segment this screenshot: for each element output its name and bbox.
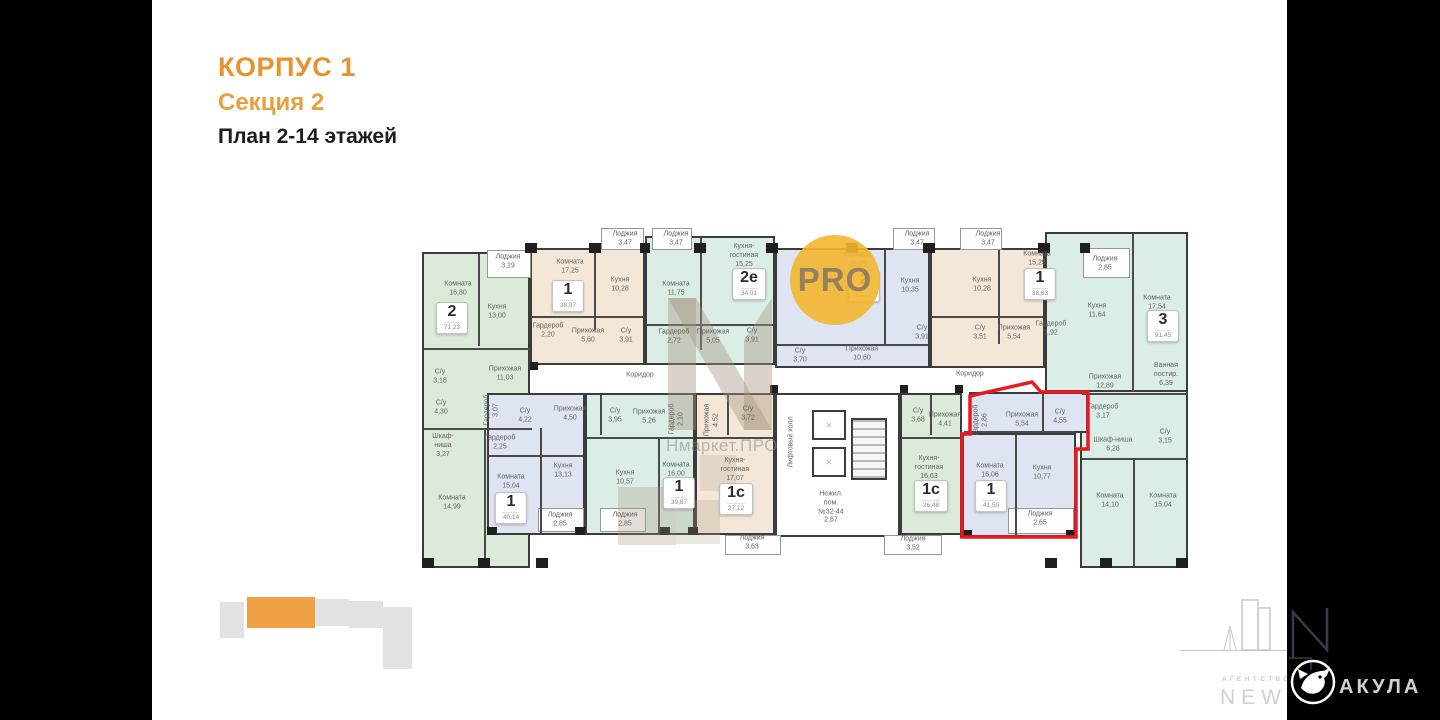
- wall-pier: [694, 243, 706, 253]
- agency-building-sketch: [1180, 592, 1287, 650]
- wall-pier: [589, 243, 601, 253]
- room-label: Прихожая5,54: [998, 324, 1030, 342]
- room-label: Лоджия3,47: [905, 230, 930, 248]
- room-label: Комната16,80: [444, 280, 471, 298]
- room-label: Кухня13,13: [554, 462, 573, 480]
- wall-segment: [1015, 435, 1017, 535]
- wall-pier: [1045, 558, 1057, 568]
- region-apartment-1room-top: [530, 248, 645, 365]
- agency-label: АГЕНТСТВО: [1222, 676, 1287, 683]
- wall-pier: [1080, 243, 1090, 253]
- stairs: [851, 418, 887, 480]
- room-label: Комната11,75: [662, 280, 689, 298]
- pro-watermark-label: PRO: [798, 261, 873, 299]
- wall-pier: [1100, 558, 1112, 568]
- room-label: Лоджия3,19: [496, 253, 521, 271]
- room-label: Кухня13,00: [488, 303, 507, 321]
- room-label: Лоджия3,47: [664, 230, 689, 248]
- agency-logo: АГЕНТСТВО NEW: [1180, 592, 1287, 712]
- unit-badge: 391,45: [1147, 310, 1179, 342]
- shark-icon: [1289, 658, 1337, 706]
- header: КОРПУС 1 Секция 2 План 2-14 этажей: [218, 52, 397, 149]
- room-label: Гардероб3,17: [1088, 403, 1119, 421]
- room-label: Гардероб2,20: [533, 322, 564, 340]
- room-label: С/у3,18: [433, 368, 447, 386]
- room-label: Кухня11,64: [1088, 302, 1107, 320]
- room-label: Ваннаяпостир.6,39: [1154, 362, 1178, 388]
- room-label: Лоджия3,47: [976, 230, 1001, 248]
- unit-badge: 2е34,91: [732, 268, 766, 300]
- room-label: С/у4,55: [1053, 408, 1067, 426]
- room-label: Шкаф-ниша3,27: [432, 433, 454, 459]
- room-label: С/у3,70: [793, 347, 807, 365]
- room-label: Комната17,25: [556, 258, 583, 276]
- building-block: [220, 602, 244, 638]
- wall-segment: [594, 250, 596, 330]
- room-label: Кухня10,28: [973, 276, 992, 294]
- building-block: [383, 607, 412, 669]
- room-label: Гардероб1,92: [1036, 320, 1067, 338]
- wall-pier: [640, 243, 650, 253]
- room-label: Нежил.пом.№32-442,67: [818, 491, 843, 526]
- room-label: Коридор: [626, 372, 654, 381]
- room-label: С/у3,95: [608, 407, 622, 425]
- wall-pier: [525, 243, 537, 253]
- wall-pier: [955, 385, 963, 393]
- wall-pier: [770, 385, 778, 393]
- room-label: Лоджия2,85: [1093, 255, 1118, 273]
- unit-badge: 1с27,12: [719, 483, 753, 515]
- wall-segment: [478, 254, 480, 346]
- wall-segment: [932, 316, 1043, 318]
- shark-logo-block: АКУЛА: [1287, 0, 1440, 720]
- room-label: Комната15,25: [1023, 250, 1050, 268]
- unit-badge: 139,87: [663, 477, 695, 509]
- wall-segment: [600, 395, 602, 435]
- room-label: Прихожая4,52: [703, 404, 721, 436]
- building-block: [315, 599, 349, 626]
- wall-segment: [1082, 393, 1188, 395]
- building-block: [349, 601, 383, 628]
- nmarket-watermark-text: Нмаркет.ПРО: [666, 436, 778, 456]
- room-label: Кухня-гостиная15,25: [730, 243, 758, 269]
- room-label: С/у3,51: [973, 324, 987, 342]
- wall-segment: [902, 437, 960, 439]
- wall-pier: [1066, 530, 1076, 538]
- room-label: Комната14,10: [1096, 492, 1123, 510]
- room-label: Лоджия3,63: [740, 534, 765, 552]
- room-label: С/у3,91: [745, 327, 759, 345]
- wall-segment: [424, 348, 530, 350]
- unit-badge: 140,14: [495, 492, 527, 524]
- unit-badge: 271,23: [436, 302, 468, 334]
- room-label: Прихожая10,60: [846, 345, 878, 363]
- room-label: Лоджия2,65: [1028, 510, 1053, 528]
- room-label: С/у4,30: [434, 399, 448, 417]
- building-title: КОРПУС 1: [218, 52, 397, 83]
- room-label: Лоджия3,47: [613, 230, 638, 248]
- room-label: Комната15,04: [1149, 492, 1176, 510]
- wall-pier: [575, 527, 585, 535]
- section-title: Секция 2: [218, 89, 397, 117]
- wall-segment: [647, 324, 773, 326]
- room-label: Шкаф-ниша6,28: [1094, 436, 1133, 454]
- wall-segment: [1133, 460, 1135, 566]
- room-label: С/у3,91: [915, 324, 929, 342]
- wall-segment: [1042, 394, 1044, 432]
- unit-badge: 1с26,48: [914, 480, 948, 512]
- wall-pier: [766, 243, 778, 253]
- room-label: Комната14,99: [438, 494, 465, 512]
- wall-pier: [478, 558, 490, 568]
- room-label: С/у3,72: [741, 405, 755, 423]
- wall-pier: [487, 527, 497, 535]
- room-label: Прихожая11,03: [489, 365, 521, 383]
- wall-segment: [727, 395, 729, 435]
- room-label: Коридор: [956, 371, 984, 380]
- wall-segment: [424, 428, 532, 430]
- agency-divider-line: [1180, 650, 1287, 651]
- wall-pier: [422, 558, 434, 568]
- room-label: Кухня-гостиная17,07: [721, 457, 749, 483]
- room-label: Кухня10,77: [1033, 464, 1052, 482]
- room-label: С/у3,68: [911, 407, 925, 425]
- room-label: Гардероб2,25: [485, 434, 516, 452]
- wall-segment: [658, 439, 660, 533]
- wall-segment: [1132, 234, 1134, 392]
- room-label: С/у4,22: [518, 407, 532, 425]
- wall-segment: [1082, 458, 1188, 460]
- room-label: Прихожая12,89: [1089, 373, 1121, 391]
- unit-badge: 138,63: [1024, 268, 1056, 300]
- room-label: Гардероб2,10: [668, 404, 686, 435]
- room-label: Прихожая4,41: [929, 411, 961, 429]
- wall-segment: [884, 250, 886, 346]
- room-label: Лоджия3,52: [901, 535, 926, 553]
- room-label: Кухня-гостиная16,63: [915, 455, 943, 481]
- wall-segment: [532, 316, 644, 318]
- shark-agency-name: АКУЛА: [1339, 676, 1421, 699]
- room-label: Лоджия2,85: [548, 511, 573, 529]
- room-label: Прихожая5,26: [633, 408, 665, 426]
- room-label: С/у3,15: [1158, 428, 1172, 446]
- room-label: Гардероб3,07: [483, 395, 501, 426]
- unit-badge: 138,97: [552, 280, 584, 312]
- wall-pier: [960, 530, 972, 538]
- room-label: Лифтовый холл: [788, 416, 797, 467]
- room-label: Прихожая4,50: [554, 405, 586, 423]
- wall-pier: [688, 527, 698, 535]
- room-label: Комната16,06: [976, 462, 1003, 480]
- slide-background: КОРПУС 1 Секция 2 План 2-14 этажей ✕: [152, 0, 1287, 720]
- room-label: С/у3,91: [619, 327, 633, 345]
- room-label: Прихожая5,05: [697, 328, 729, 346]
- elevator-shaft: ✕: [812, 447, 846, 477]
- unit-badge-highlighted[interactable]: 141,50: [975, 480, 1007, 512]
- room-label: Кухня10,35: [901, 277, 920, 295]
- room-label: Прихожая5,54: [1006, 411, 1038, 429]
- wall-pier: [536, 558, 548, 568]
- wall-pier: [900, 385, 908, 393]
- wall-segment: [489, 455, 583, 457]
- room-label: Кухня10,28: [611, 276, 630, 294]
- building-locator: [220, 595, 580, 675]
- wall-pier: [530, 362, 538, 370]
- room-label: Гардероб2,86: [972, 405, 990, 436]
- room-label: Гардероб2,72: [659, 328, 690, 346]
- room-label: Комната15,04: [497, 473, 524, 491]
- floors-subtitle: План 2-14 этажей: [218, 125, 397, 149]
- building-block-active: [247, 597, 315, 628]
- wall-pier: [1176, 558, 1188, 568]
- room-label: Кухня10,57: [616, 469, 635, 487]
- wall-segment: [540, 428, 542, 533]
- agency-name: NEW: [1220, 686, 1287, 710]
- wall-pier: [660, 527, 670, 535]
- room-label: Лоджия2,85: [613, 511, 638, 529]
- elevator-shaft: ✕: [812, 410, 846, 440]
- pro-watermark-badge: PRO: [790, 235, 880, 325]
- room-label: Прихожая5,60: [572, 327, 604, 345]
